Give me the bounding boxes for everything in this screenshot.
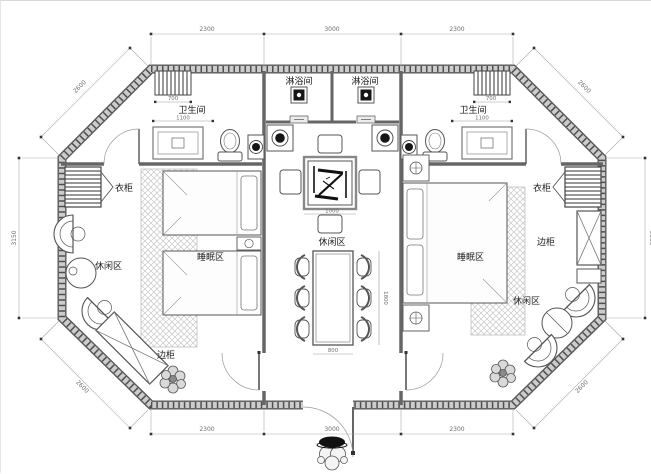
stool-icon: [318, 135, 342, 153]
stool-icon: [280, 170, 301, 194]
nightstand-icon: [403, 305, 429, 331]
dim-diagonal-bl: 2600: [74, 379, 90, 395]
entry-opening: [303, 399, 353, 411]
person-figure-icon: [317, 437, 348, 471]
room-label-bathroom-right: 卫生间: [459, 104, 486, 116]
dim-bottom-center: 3000: [324, 426, 339, 433]
room-label-wardrobe-left: 衣柜: [115, 182, 133, 194]
floor-plan-svg: 2300 3000 2300 2300 3000 2300 3150 3150 …: [1, 1, 651, 474]
room-label-wardrobe-right: 衣柜: [533, 182, 551, 194]
room-label-leisure-right: 休闲区: [513, 295, 540, 307]
washbasin-right-icon: [372, 125, 398, 151]
dim-radiator-right: 700: [486, 96, 497, 102]
dim-dining-length: 1800: [382, 291, 388, 305]
room-label-shower-left: 淋浴间: [285, 75, 312, 87]
dim-bathroom-left: 1100: [176, 116, 190, 122]
room-label-sleeping-left: 睡眠区: [197, 251, 224, 263]
dim-top-left: 2300: [199, 26, 214, 33]
dim-top-right: 2300: [449, 26, 464, 33]
dim-left-side: 3150: [11, 230, 18, 245]
room-label-sleeping-right: 睡眠区: [457, 251, 484, 263]
room-label-cabinet-left: 边柜: [157, 349, 175, 361]
room-label-bathroom-left: 卫生间: [178, 104, 205, 116]
double-bed-icon: [403, 183, 507, 303]
dim-dining-width: 800: [328, 348, 339, 354]
dim-diagonal-br: 2600: [574, 379, 590, 395]
dim-tea-table: 1000: [325, 209, 339, 215]
floor-plan-page: 2300 3000 2300 2300 3000 2300 3150 3150 …: [0, 0, 651, 473]
stool-icon: [318, 215, 342, 233]
single-bed-icon: [163, 171, 261, 235]
room-label-shower-right: 淋浴间: [351, 75, 378, 87]
nightstand-icon: [403, 155, 429, 181]
dim-bottom-left: 2300: [199, 426, 214, 433]
side-cabinet-right-icon: [577, 211, 601, 283]
washbasin-left-icon: [267, 125, 293, 151]
dim-bathroom-right: 1100: [475, 116, 489, 122]
dim-radiator-left: 700: [168, 96, 179, 102]
round-table-icon: [542, 308, 572, 338]
room-label-leisure-center: 休闲区: [318, 236, 345, 248]
dim-bottom-right: 2300: [449, 426, 464, 433]
dim-top-center: 3000: [324, 26, 339, 33]
nightstand-icon: [237, 237, 261, 250]
room-label-leisure-left: 休闲区: [95, 260, 122, 272]
room-label-cabinet-right: 边柜: [537, 236, 555, 248]
round-table-icon: [66, 258, 96, 288]
stool-icon: [359, 170, 380, 194]
